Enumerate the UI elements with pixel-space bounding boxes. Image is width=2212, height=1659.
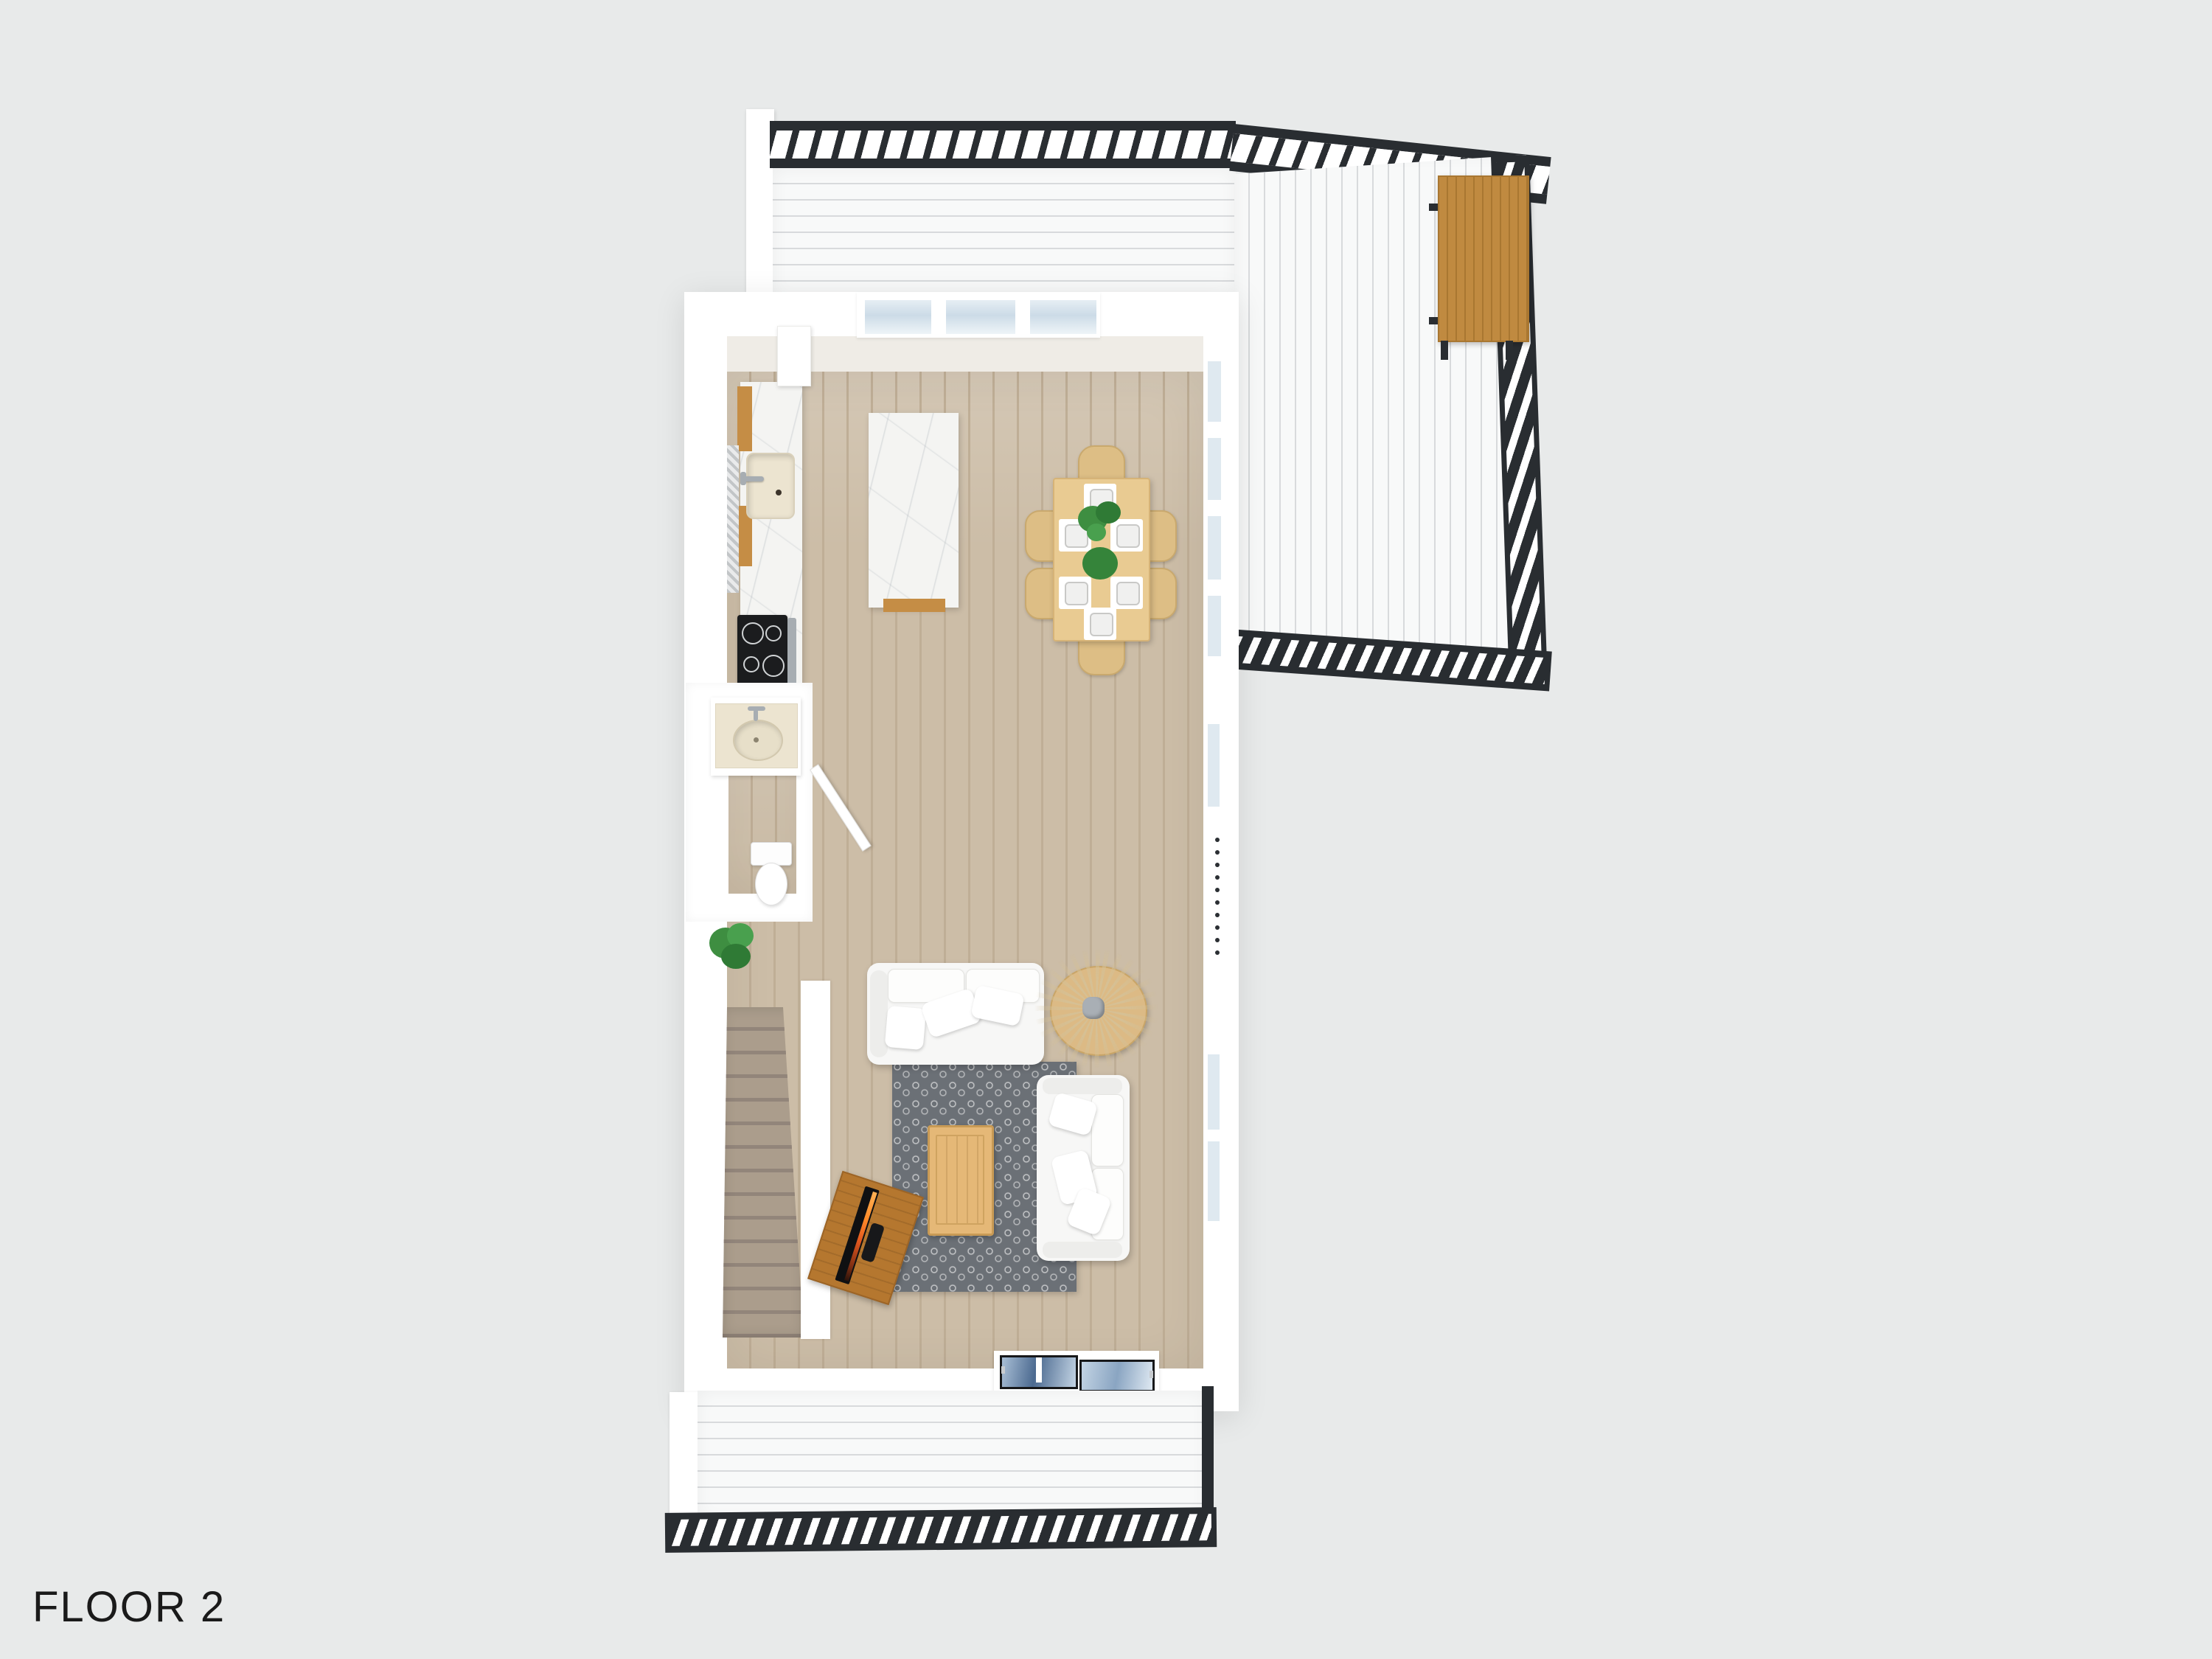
kitchen-faucet-base xyxy=(740,472,746,485)
wall-fastener-dot xyxy=(1215,950,1220,955)
burner xyxy=(743,656,759,672)
cabinet-wood-face xyxy=(737,386,752,451)
dining-chair xyxy=(1078,636,1125,675)
cooktop xyxy=(737,615,787,687)
kitchen-sink xyxy=(746,453,795,519)
plant-leaf xyxy=(1096,501,1121,524)
bottom-deck-right-post xyxy=(1202,1386,1214,1520)
coffee-table-inset xyxy=(936,1135,984,1225)
dining-glass-door xyxy=(1208,347,1221,671)
door-post xyxy=(1208,656,1221,671)
outdoor-bench xyxy=(1438,175,1529,342)
wall-fastener-dot xyxy=(1215,913,1220,917)
sofa-small xyxy=(1037,1075,1130,1261)
wall-fastener-dot xyxy=(1215,838,1220,842)
sink-drain xyxy=(754,737,759,742)
potted-plant xyxy=(708,923,757,970)
toilet-bowl xyxy=(755,863,787,905)
wall-fastener-dot xyxy=(1215,925,1220,930)
railing-bottom-rail xyxy=(770,159,1236,168)
wall-fastener-dot xyxy=(1215,850,1220,855)
wall-fastener-dot xyxy=(1215,875,1220,880)
powder-room xyxy=(686,683,813,922)
railing-balusters xyxy=(670,1514,1211,1546)
railing-top-rail xyxy=(770,121,1236,131)
wall-fastener-dot xyxy=(1215,888,1220,892)
skylight-niche xyxy=(994,1351,1159,1392)
bottom-deck-boards xyxy=(698,1391,1206,1520)
sofa-large xyxy=(867,963,1044,1065)
table-plant xyxy=(1074,501,1125,590)
skylight-panel xyxy=(1079,1360,1155,1392)
door-post xyxy=(1208,347,1221,361)
plant-leaf xyxy=(1082,547,1118,580)
sofa-arm xyxy=(1043,1242,1122,1258)
kitchen-window xyxy=(857,292,1100,338)
burner xyxy=(765,625,782,641)
window-post xyxy=(1208,1130,1220,1141)
plate xyxy=(1090,613,1113,636)
skylight-panel xyxy=(1000,1355,1078,1389)
plant-leaf xyxy=(1087,524,1106,541)
refrigerator xyxy=(777,326,811,386)
throw-pillow xyxy=(1048,1092,1098,1136)
bottom-deck-left-wall xyxy=(669,1392,699,1526)
door-post xyxy=(1208,422,1221,438)
floor-label: FLOOR 2 xyxy=(32,1582,226,1632)
oven-handle xyxy=(787,618,796,686)
deck-railing-bottom xyxy=(665,1507,1217,1553)
window-pane xyxy=(944,298,1018,336)
skylight-mullion xyxy=(1036,1357,1042,1382)
sofa-arm xyxy=(1043,1078,1122,1094)
place-setting xyxy=(1084,608,1116,640)
bathroom-faucet xyxy=(754,709,758,721)
plant-foliage xyxy=(721,944,751,969)
floorplan-canvas: FLOOR 2 xyxy=(0,0,2212,1659)
sofa-back-cushion xyxy=(1091,1094,1124,1166)
top-deck-boards xyxy=(773,168,1236,299)
bench-leg xyxy=(1429,317,1438,324)
door-post xyxy=(1208,580,1221,596)
coffee-table xyxy=(928,1125,994,1236)
railing-balusters xyxy=(770,131,1236,159)
bathroom-vanity xyxy=(711,698,801,776)
living-window-upper xyxy=(1208,721,1220,810)
burner xyxy=(742,622,764,644)
burner xyxy=(762,655,785,677)
door-post xyxy=(1208,500,1221,516)
throw-pillow xyxy=(885,1006,927,1050)
window-pane xyxy=(1028,298,1099,336)
bench-leg xyxy=(1441,341,1448,360)
bench-leg xyxy=(1429,204,1438,211)
skylight-hinge xyxy=(1001,1366,1005,1374)
window-pane xyxy=(863,298,933,336)
deck-railing-top xyxy=(770,121,1236,168)
skylight-hinge xyxy=(1150,1371,1153,1378)
living-window-lower xyxy=(1208,1051,1220,1224)
island-wood-base xyxy=(883,599,945,612)
bench-leg xyxy=(1506,341,1513,360)
wall-fastener-dot xyxy=(1215,863,1220,867)
backsplash-tile xyxy=(727,445,739,593)
plant-vase xyxy=(1082,997,1105,1019)
kitchen-island xyxy=(869,413,959,608)
sink-drain xyxy=(776,490,782,495)
wall-fastener-dot xyxy=(1215,900,1220,905)
wall-fastener-dot xyxy=(1215,938,1220,942)
stair-wall xyxy=(801,981,830,1339)
sofa-arm xyxy=(870,970,888,1057)
